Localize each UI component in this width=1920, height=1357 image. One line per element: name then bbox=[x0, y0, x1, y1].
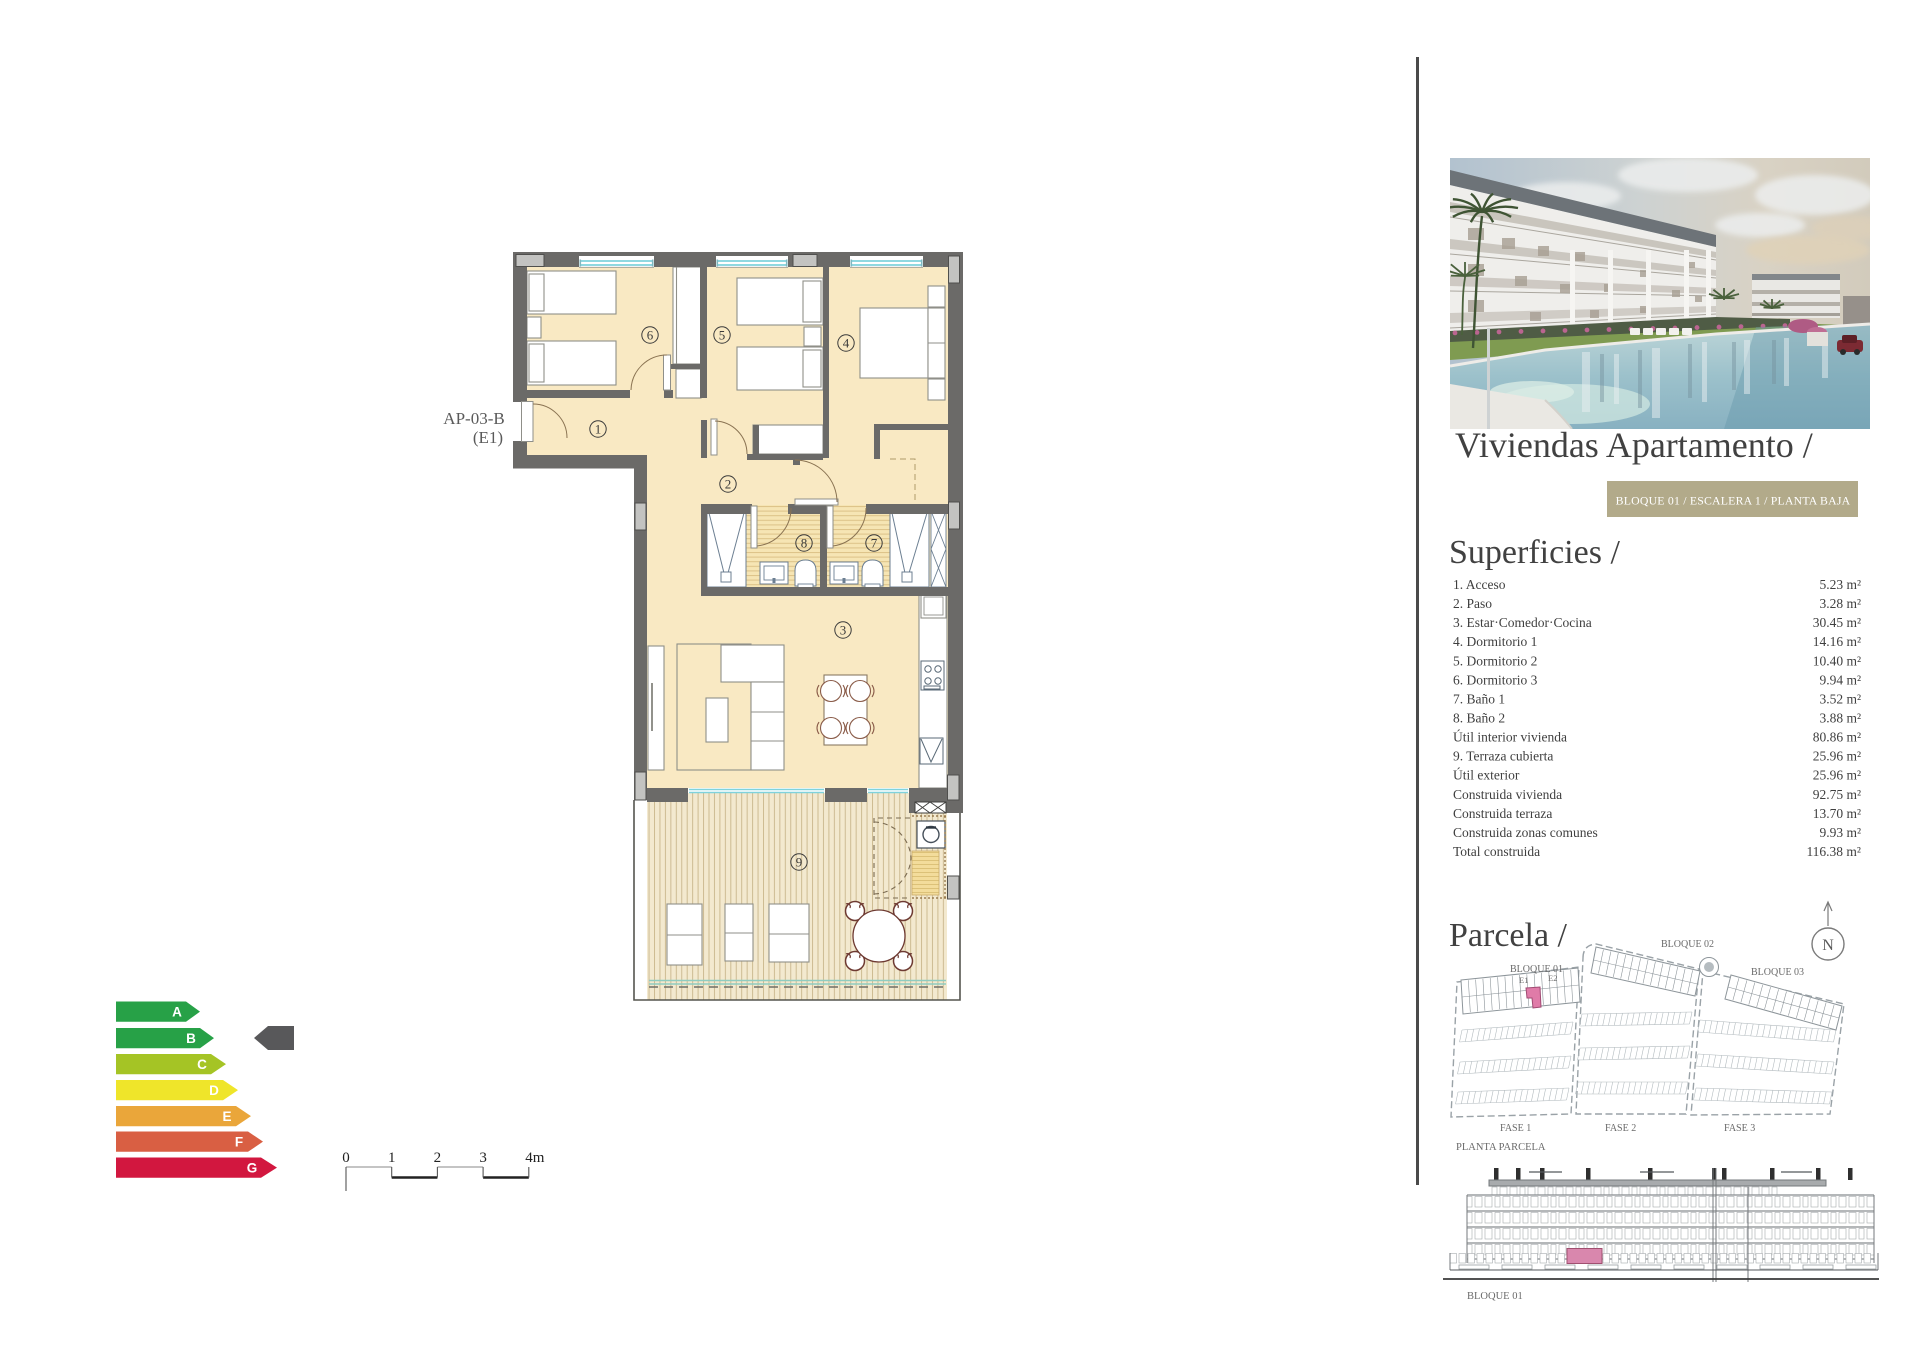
svg-text:13.70 m²: 13.70 m² bbox=[1813, 806, 1861, 821]
svg-text:14.16 m²: 14.16 m² bbox=[1813, 634, 1861, 649]
svg-text:3.52 m²: 3.52 m² bbox=[1819, 691, 1861, 706]
svg-text:Superficies /: Superficies / bbox=[1449, 534, 1620, 571]
svg-text:4. Dormitorio 1: 4. Dormitorio 1 bbox=[1453, 634, 1537, 649]
svg-text:9.94 m²: 9.94 m² bbox=[1819, 672, 1861, 687]
svg-text:3: 3 bbox=[479, 1150, 487, 1166]
svg-text:C: C bbox=[197, 1057, 207, 1072]
svg-text:Construida vivienda: Construida vivienda bbox=[1453, 787, 1562, 802]
svg-text:3: 3 bbox=[840, 623, 847, 638]
svg-text:BLOQUE 01: BLOQUE 01 bbox=[1467, 1291, 1523, 1302]
svg-text:BLOQUE 01 / ESCALERA 1 / PLANT: BLOQUE 01 / ESCALERA 1 / PLANTA BAJA bbox=[1616, 494, 1851, 508]
svg-text:PLANTA PARCELA: PLANTA PARCELA bbox=[1456, 1142, 1546, 1153]
svg-text:3.88 m²: 3.88 m² bbox=[1819, 711, 1861, 726]
svg-text:Útil exterior: Útil exterior bbox=[1453, 768, 1520, 783]
svg-text:A: A bbox=[172, 1005, 182, 1020]
svg-text:Parcela /: Parcela / bbox=[1449, 917, 1568, 954]
svg-text:4: 4 bbox=[843, 336, 850, 351]
svg-text:9.93 m²: 9.93 m² bbox=[1819, 825, 1861, 840]
svg-text:F: F bbox=[235, 1135, 243, 1150]
svg-text:1. Acceso: 1. Acceso bbox=[1453, 577, 1506, 592]
svg-text:(E1): (E1) bbox=[473, 428, 503, 447]
svg-text:7: 7 bbox=[871, 536, 878, 551]
svg-text:FASE 2: FASE 2 bbox=[1605, 1123, 1636, 1134]
svg-text:5: 5 bbox=[719, 328, 726, 343]
svg-text:2. Paso: 2. Paso bbox=[1453, 596, 1492, 611]
svg-text:FASE 1: FASE 1 bbox=[1500, 1123, 1531, 1134]
svg-text:E2: E2 bbox=[1548, 973, 1557, 983]
svg-text:80.86 m²: 80.86 m² bbox=[1813, 730, 1861, 745]
svg-text:10.40 m²: 10.40 m² bbox=[1813, 653, 1861, 668]
svg-text:E: E bbox=[222, 1109, 231, 1124]
svg-text:Útil interior vivienda: Útil interior vivienda bbox=[1453, 730, 1567, 745]
svg-text:92.75 m²: 92.75 m² bbox=[1813, 787, 1861, 802]
svg-text:0: 0 bbox=[342, 1150, 350, 1166]
svg-text:9: 9 bbox=[796, 855, 803, 870]
svg-text:3. Estar·Comedor·Cocina: 3. Estar·Comedor·Cocina bbox=[1453, 615, 1592, 630]
svg-text:E1: E1 bbox=[1519, 975, 1528, 985]
svg-text:BLOQUE 03: BLOQUE 03 bbox=[1751, 967, 1804, 978]
svg-text:N: N bbox=[1822, 937, 1834, 954]
svg-text:6: 6 bbox=[647, 328, 654, 343]
svg-text:25.96 m²: 25.96 m² bbox=[1813, 749, 1861, 764]
svg-text:8: 8 bbox=[801, 536, 808, 551]
svg-text:5.23 m²: 5.23 m² bbox=[1819, 577, 1861, 592]
svg-text:25.96 m²: 25.96 m² bbox=[1813, 768, 1861, 783]
svg-text:1: 1 bbox=[388, 1150, 396, 1166]
svg-text:8. Baño 2: 8. Baño 2 bbox=[1453, 711, 1505, 726]
svg-text:Total construida: Total construida bbox=[1453, 844, 1540, 859]
svg-text:1: 1 bbox=[595, 422, 602, 437]
svg-text:Viviendas Apartamento /: Viviendas Apartamento / bbox=[1455, 425, 1813, 465]
svg-text:Construida zonas comunes: Construida zonas comunes bbox=[1453, 825, 1598, 840]
svg-text:9. Terraza cubierta: 9. Terraza cubierta bbox=[1453, 749, 1553, 764]
svg-text:Construida terraza: Construida terraza bbox=[1453, 806, 1552, 821]
svg-text:2: 2 bbox=[725, 477, 732, 492]
svg-text:B: B bbox=[186, 1031, 196, 1046]
svg-text:5. Dormitorio 2: 5. Dormitorio 2 bbox=[1453, 653, 1537, 668]
svg-text:4m: 4m bbox=[525, 1150, 545, 1166]
svg-text:30.45 m²: 30.45 m² bbox=[1813, 615, 1861, 630]
svg-text:G: G bbox=[247, 1161, 258, 1176]
svg-text:3.28 m²: 3.28 m² bbox=[1819, 596, 1861, 611]
svg-text:116.38 m²: 116.38 m² bbox=[1806, 844, 1861, 859]
svg-text:FASE 3: FASE 3 bbox=[1724, 1123, 1755, 1134]
svg-text:2: 2 bbox=[434, 1150, 442, 1166]
svg-text:BLOQUE 02: BLOQUE 02 bbox=[1661, 939, 1714, 950]
svg-text:7. Baño 1: 7. Baño 1 bbox=[1453, 691, 1505, 706]
svg-text:AP-03-B: AP-03-B bbox=[443, 409, 504, 428]
svg-text:6. Dormitorio 3: 6. Dormitorio 3 bbox=[1453, 672, 1538, 687]
svg-text:D: D bbox=[209, 1083, 219, 1098]
